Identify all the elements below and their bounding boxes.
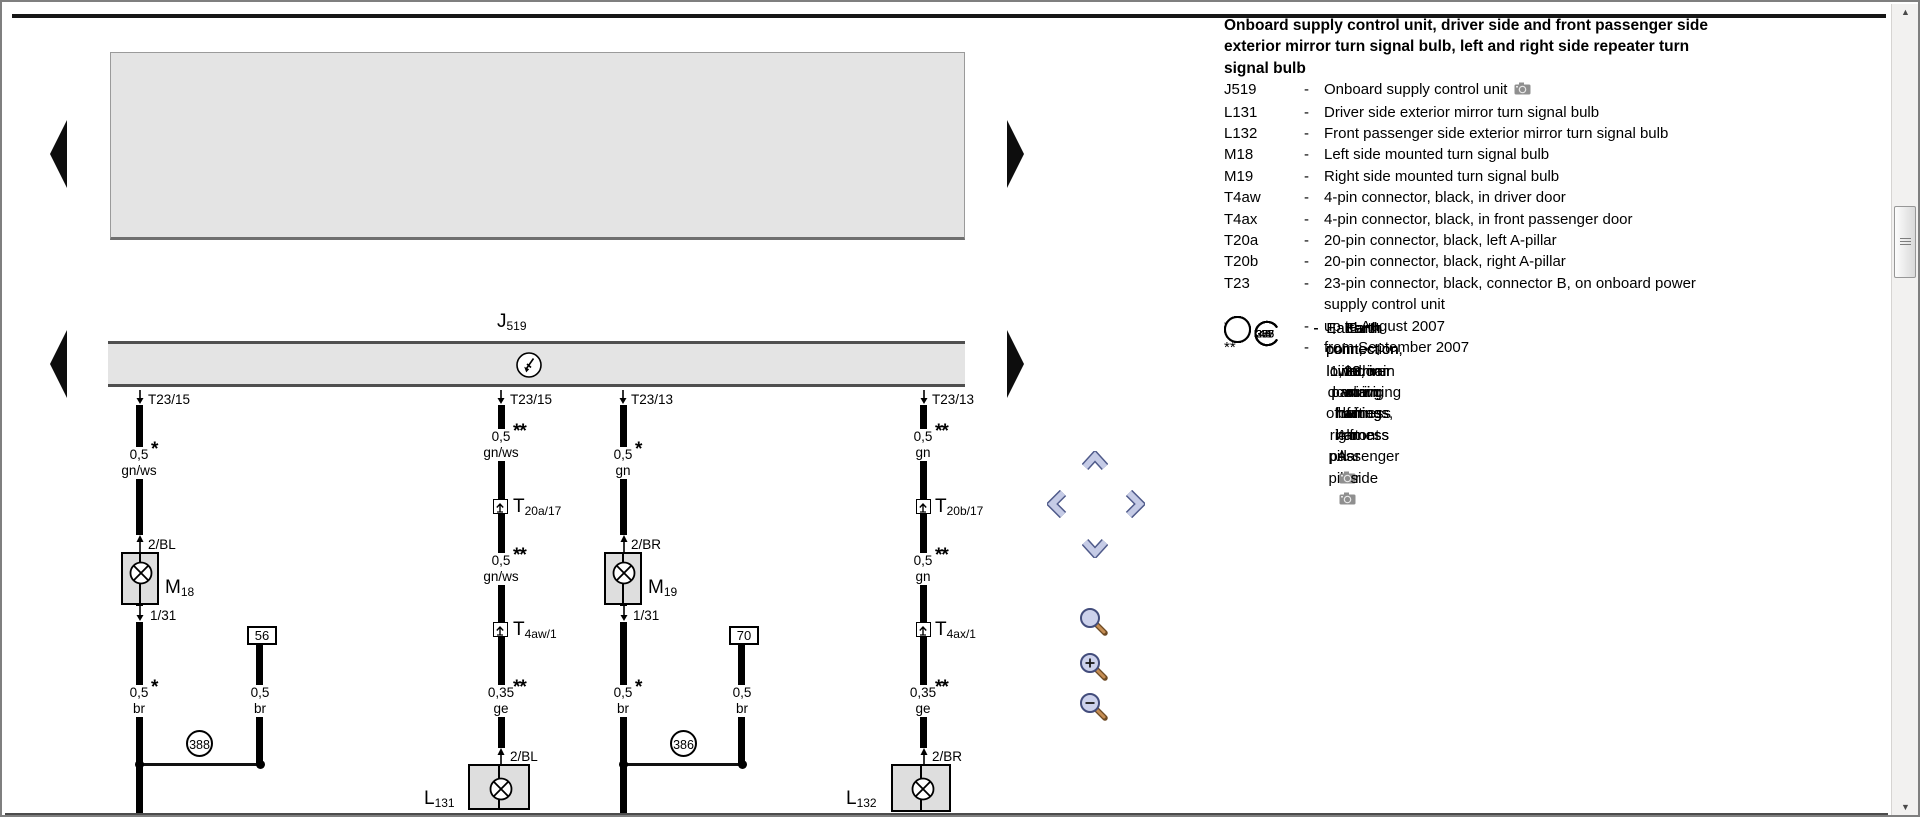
junction-dot xyxy=(738,760,747,769)
pin-down-arrow xyxy=(618,390,628,405)
scroll-up-icon[interactable] xyxy=(1082,451,1108,471)
branch-up-arrow xyxy=(135,535,145,552)
branch-up-arrow xyxy=(919,748,929,764)
lamp-l131 xyxy=(468,764,530,810)
connector-t20b-box xyxy=(916,499,931,514)
legend-description: Earth connection 23, in main wiring harn… xyxy=(1326,318,1399,446)
connector-t20a-box xyxy=(493,499,508,514)
lamp-m19 xyxy=(604,552,642,605)
legend-row-J519: J519-Onboard supply control unit xyxy=(1224,79,1879,101)
legend-code: M18 xyxy=(1224,144,1304,165)
junction-dot xyxy=(256,760,265,769)
earth-connection-386: 386 xyxy=(670,730,697,757)
wire-label: 0,35ge** xyxy=(885,685,961,717)
pin-down-arrow xyxy=(919,390,929,405)
connector-icon xyxy=(494,501,506,513)
legend-code: T20a xyxy=(1224,230,1304,251)
legend-code: M19 xyxy=(1224,166,1304,187)
t4aw1-label: T4aw/1 xyxy=(513,619,557,641)
m18-label: M18 xyxy=(165,577,194,599)
bulb-icon xyxy=(489,777,513,801)
t20a17-label: T20a/17 xyxy=(513,496,561,518)
branch-label: 2/BR xyxy=(932,749,962,764)
zoom-in-icon[interactable] xyxy=(1078,651,1110,683)
legend-dash: - xyxy=(1304,102,1324,123)
legend-code: T4aw xyxy=(1224,187,1304,208)
branch-label: 2/BR xyxy=(631,537,661,552)
legend-row-T20a: T20a-20-pin connector, black, left A-pil… xyxy=(1224,230,1879,251)
pin-label-col2: T23/15 xyxy=(510,392,552,407)
legend-description: Left side mounted turn signal bulb xyxy=(1324,144,1879,165)
terminal-56-box: 56 xyxy=(247,626,277,645)
legend-row-starstar: **-from September 2007 xyxy=(1224,337,1879,358)
pan-left-arrow-bottom[interactable] xyxy=(50,330,67,398)
connector-icon xyxy=(917,624,929,636)
wire-label: 0,5gn** xyxy=(885,429,961,461)
pin-down-arrow xyxy=(619,606,629,622)
connector-t4aw-box xyxy=(493,622,508,637)
legend-description: Front passenger side exterior mirror tur… xyxy=(1324,123,1879,144)
legend-panel: Onboard supply control unit, driver side… xyxy=(1224,15,1879,359)
wire-label: 0,5br xyxy=(222,685,298,717)
scrollbar-grip xyxy=(1900,241,1911,242)
legend-dash: - xyxy=(1304,273,1324,294)
pan-right-arrow-bottom[interactable] xyxy=(1007,330,1024,398)
legend-rows: J519-Onboard supply control unitL131-Dri… xyxy=(1224,79,1879,358)
legend-row-T23: T23-23-pin connector, black, connector B… xyxy=(1224,273,1879,316)
legend-row-M19: M19-Right side mounted turn signal bulb xyxy=(1224,166,1879,187)
j519-label: J519 xyxy=(497,311,527,333)
legend-description: 23-pin connector, black, connector B, on… xyxy=(1324,273,1879,316)
legend-description: up to August 2007 xyxy=(1324,316,1879,337)
earth-symbol: 388 xyxy=(1226,318,1306,353)
diagram-canvas: J519 T23/15 T23/15 T23/13 T23/13 0,5gn/w… xyxy=(2,2,1032,817)
branch-up-arrow xyxy=(496,748,506,764)
bulb-icon xyxy=(911,777,935,801)
legend-dash: - xyxy=(1304,187,1324,208)
vertical-scrollbar[interactable]: ▲ ▼ xyxy=(1891,4,1918,815)
l132-label: L132 xyxy=(846,788,877,810)
wire-label: 0,5gn** xyxy=(885,553,961,585)
connector-icon xyxy=(494,624,506,636)
zoom-tool-icon[interactable] xyxy=(1078,606,1110,638)
legend-description: from September 2007 xyxy=(1324,337,1879,358)
legend-code: L132 xyxy=(1224,123,1304,144)
pin-label: 1/31 xyxy=(150,608,176,623)
pin-down-arrow xyxy=(135,390,145,405)
t20b17-label: T20b/17 xyxy=(935,496,983,518)
connector-t4ax-box xyxy=(916,622,931,637)
bulb-icon xyxy=(612,561,636,585)
wire-label: 0,5gn/ws* xyxy=(101,447,177,479)
pin-label-col4: T23/13 xyxy=(932,392,974,407)
wire-label: 0,5br* xyxy=(585,685,661,717)
legend-title: Onboard supply control unit, driver side… xyxy=(1224,15,1879,79)
svg-text:388: 388 xyxy=(1255,328,1273,340)
legend-description: 20-pin connector, black, right A-pillar xyxy=(1324,251,1879,272)
m19-label: M19 xyxy=(648,577,677,599)
scrollbar-grip xyxy=(1900,238,1911,239)
l131-label: L131 xyxy=(424,788,455,810)
bulb-icon xyxy=(129,561,153,585)
legend-code: T20b xyxy=(1224,251,1304,272)
camera-icon[interactable] xyxy=(1339,490,1356,511)
legend-dash: - xyxy=(1304,230,1324,251)
wire-label: 0,5gn* xyxy=(585,447,661,479)
legend-code: T4ax xyxy=(1224,209,1304,230)
scroll-left-icon[interactable] xyxy=(1047,490,1067,518)
legend-dash: - xyxy=(1304,209,1324,230)
legend-dash: - xyxy=(1304,79,1324,100)
legend-row-T4aw: T4aw-4-pin connector, black, in driver d… xyxy=(1224,187,1879,208)
legend-dash: - xyxy=(1304,166,1324,187)
earth-link-line xyxy=(139,763,261,766)
scrollbar-grip xyxy=(1900,244,1911,245)
legend-row-L132: L132-Front passenger side exterior mirro… xyxy=(1224,123,1879,144)
scroll-down-icon[interactable] xyxy=(1082,538,1108,558)
wire-label: 0,5gn/ws** xyxy=(463,429,539,461)
terminal-70-box: 70 xyxy=(729,626,759,645)
legend-description: Onboard supply control unit xyxy=(1324,79,1879,101)
earth-connection-388: 388 xyxy=(186,730,213,757)
earth-link-line xyxy=(622,763,744,766)
pan-right-arrow-top[interactable] xyxy=(1007,120,1024,188)
wire-label: 0,5br* xyxy=(101,685,177,717)
legend-description: 20-pin connector, black, left A-pillar xyxy=(1324,230,1879,251)
legend-row-T20b: T20b-20-pin connector, black, right A-pi… xyxy=(1224,251,1879,272)
scrollbar-down-button[interactable]: ▼ xyxy=(1892,799,1919,815)
legend-dash: - xyxy=(1304,251,1324,272)
pin-down-arrow xyxy=(135,606,145,622)
pin-down-arrow xyxy=(496,390,506,405)
legend-description: Driver side exterior mirror turn signal … xyxy=(1324,102,1879,123)
legend-dash: - xyxy=(1304,337,1324,358)
scroll-right-icon[interactable] xyxy=(1125,490,1145,518)
pin-label-col3: T23/13 xyxy=(631,392,673,407)
scrollbar-thumb[interactable] xyxy=(1894,206,1916,278)
junction-dot xyxy=(619,760,628,769)
control-unit-symbol-icon xyxy=(515,351,543,379)
connector-icon xyxy=(917,501,929,513)
junction-dot xyxy=(135,760,144,769)
pin-label-col1: T23/15 xyxy=(148,392,190,407)
legend-description: 4-pin connector, black, in driver door xyxy=(1324,187,1879,208)
legend-description: Right side mounted turn signal bulb xyxy=(1324,166,1879,187)
camera-icon[interactable] xyxy=(1514,80,1531,101)
branch-up-arrow xyxy=(619,535,629,552)
legend-description: 4-pin connector, black, in front passeng… xyxy=(1324,209,1879,230)
legend-dash: - xyxy=(1304,144,1324,165)
pin-label: 1/31 xyxy=(633,608,659,623)
lamp-l132 xyxy=(891,764,951,812)
diagram-bottom-border xyxy=(5,813,1888,815)
wire-label: 0,5gn/ws** xyxy=(463,553,539,585)
legend-row-388: 388-Earth connection 23, in main wiring … xyxy=(1224,316,1251,344)
legend-dash: - xyxy=(1304,123,1324,144)
legend-code: T23 xyxy=(1224,273,1304,294)
diagram-top-component-block xyxy=(110,52,965,240)
legend-row-T4ax: T4ax-4-pin connector, black, in front pa… xyxy=(1224,209,1879,230)
wiring-diagram-viewer-window: J519 T23/15 T23/15 T23/13 T23/13 0,5gn/w… xyxy=(0,0,1920,817)
lamp-m18 xyxy=(121,552,159,605)
legend-row-L131: L131-Driver side exterior mirror turn si… xyxy=(1224,102,1879,123)
zoom-out-icon[interactable] xyxy=(1078,691,1110,723)
branch-label: 2/BL xyxy=(510,749,538,764)
legend-dash: - xyxy=(1306,318,1326,339)
wire-label: 0,5br xyxy=(704,685,780,717)
branch-label: 2/BL xyxy=(148,537,176,552)
wire-label: 0,35ge** xyxy=(463,685,539,717)
scrollbar-up-button[interactable]: ▲ xyxy=(1892,4,1919,20)
legend-code: L131 xyxy=(1224,102,1304,123)
t4ax1-label: T4ax/1 xyxy=(935,619,976,641)
pan-left-arrow-top[interactable] xyxy=(50,120,67,188)
legend-code: J519 xyxy=(1224,79,1304,100)
legend-row-M18: M18-Left side mounted turn signal bulb xyxy=(1224,144,1879,165)
